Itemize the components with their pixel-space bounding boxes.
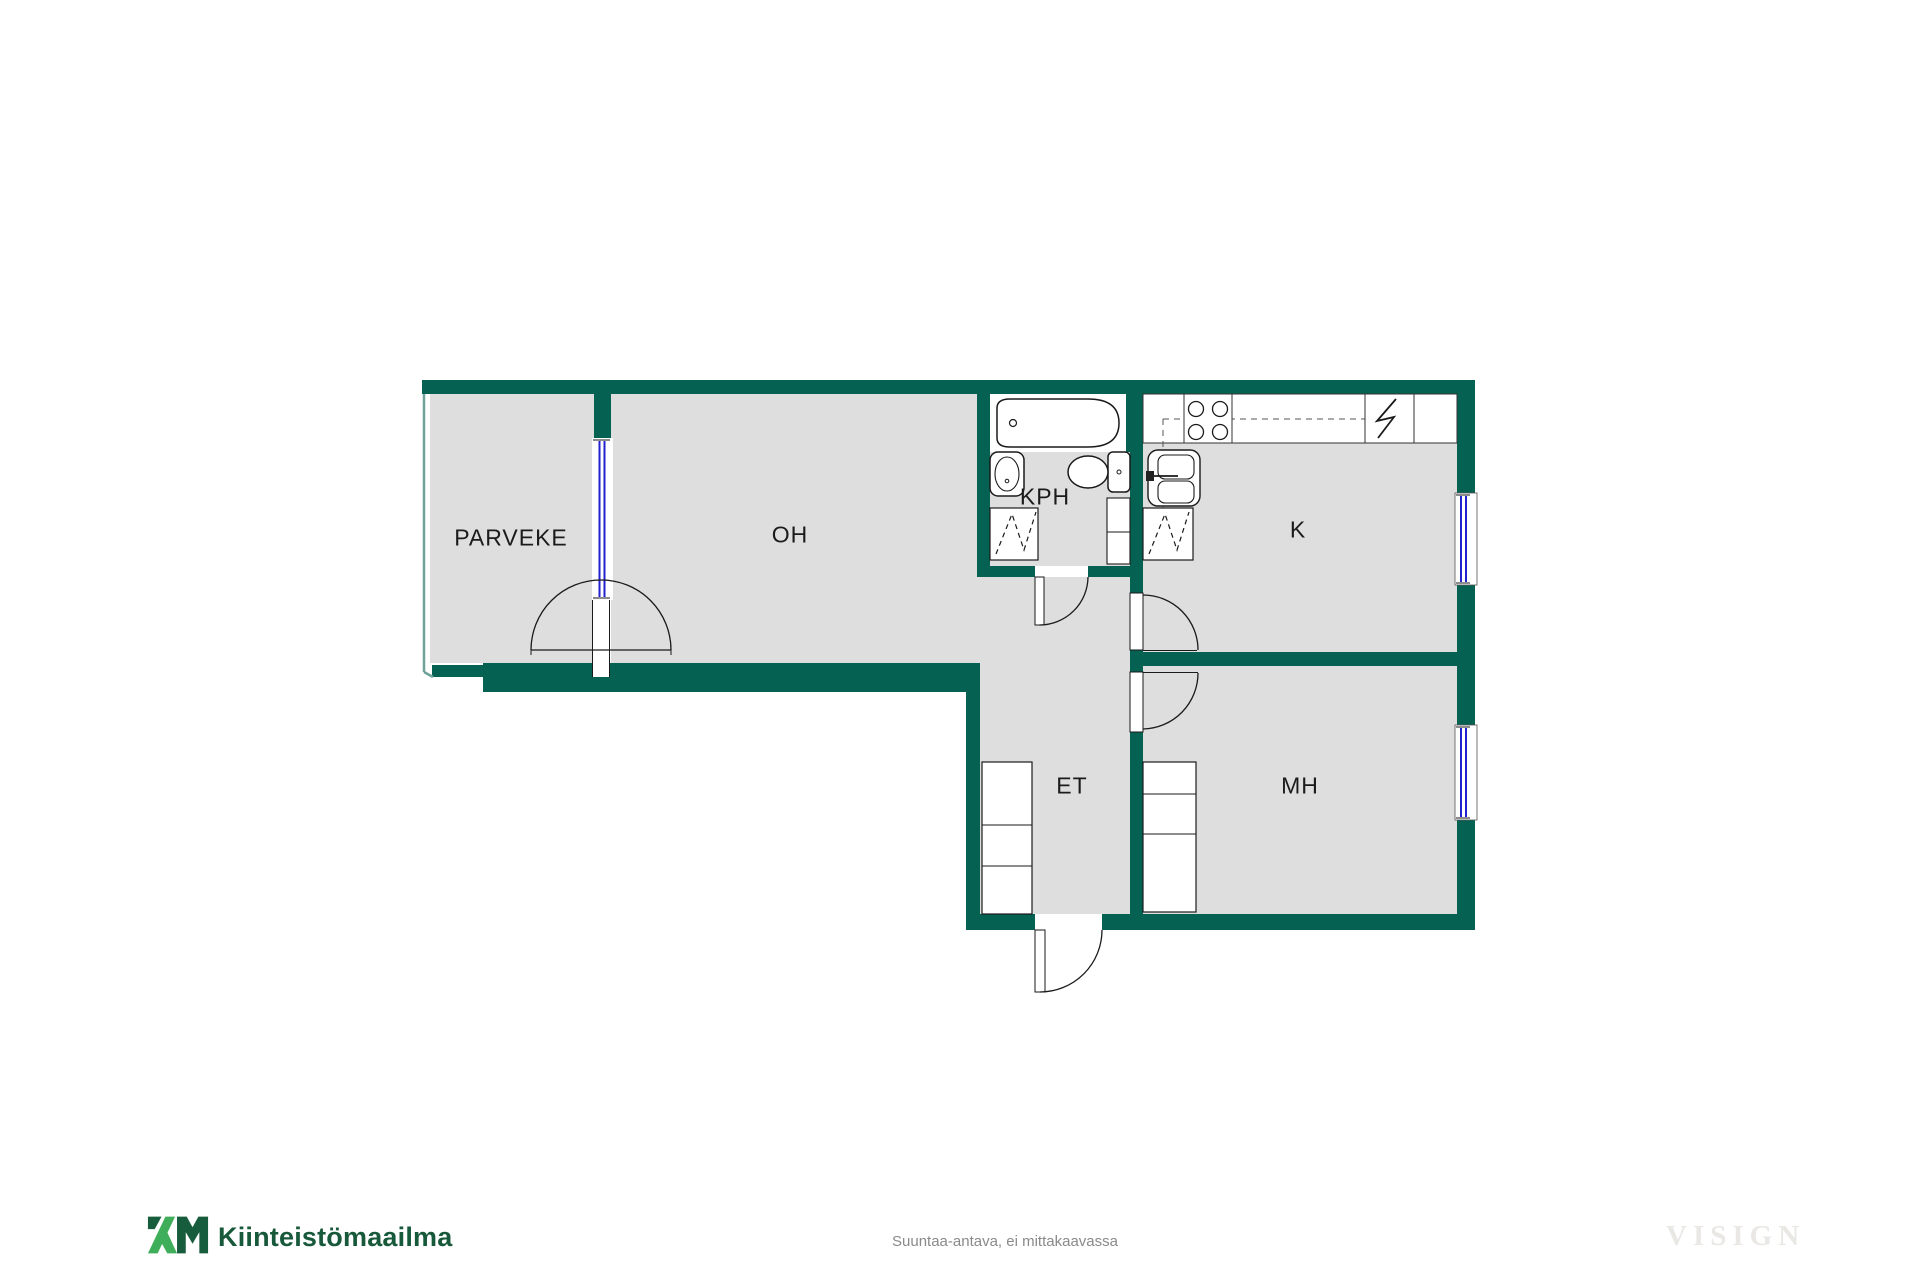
wall-kph-left [977, 394, 990, 577]
room-label-oh: OH [772, 522, 809, 549]
refrigerator-icon [1365, 394, 1414, 443]
entrance-door [1035, 914, 1102, 992]
room-label-k: K [1290, 517, 1306, 544]
wall-kph-bottom-left [977, 566, 1035, 577]
wall-balcony-stub [432, 665, 483, 677]
washing-machine-icon [990, 508, 1038, 560]
wall-left-section-bottom [483, 663, 980, 692]
stove-icon [1184, 394, 1232, 443]
balcony-window [592, 438, 613, 600]
wall-corridor-c [1130, 732, 1143, 914]
wall-k-mh-divider [1143, 652, 1457, 666]
kitchen-window [1455, 493, 1477, 585]
wall-right [1457, 380, 1475, 930]
room-label-mh: MH [1281, 773, 1319, 800]
wall-top [422, 380, 1475, 394]
dishwasher-icon [1143, 508, 1193, 560]
floorplan-drawing [0, 0, 1920, 1280]
room-label-et: ET [1056, 773, 1087, 800]
wall-corridor-b [1130, 650, 1143, 672]
km-logo-icon [146, 1214, 210, 1256]
hall-wardrobe [982, 762, 1032, 914]
room-label-kph: KPH [1020, 484, 1070, 511]
visign-watermark: VISIGN [1666, 1220, 1805, 1253]
wall-et-left [966, 663, 980, 930]
wall-corridor-a [1130, 577, 1143, 593]
kitchen-sink-icon [1146, 450, 1200, 506]
toilet-icon [1068, 452, 1130, 492]
wall-kph-k [1130, 452, 1143, 577]
brand-name: Kiinteistömaailma [218, 1222, 452, 1253]
bedroom-window [1455, 725, 1477, 820]
floor-corridor [977, 577, 1130, 663]
wall-kph-k-top [1124, 394, 1143, 452]
bathroom-cabinet [1107, 498, 1130, 564]
room-label-parveke: PARVEKE [454, 525, 568, 552]
floorplan-page: PARVEKE OH KPH K ET MH Kiinteistömaailma… [0, 0, 1920, 1280]
bathtub-icon [990, 394, 1126, 452]
wall-parveke-oh-divider [594, 394, 611, 438]
bedroom-wardrobe [1143, 762, 1196, 912]
disclaimer-text: Suuntaa-antava, ei mittakaavassa [892, 1233, 1118, 1250]
